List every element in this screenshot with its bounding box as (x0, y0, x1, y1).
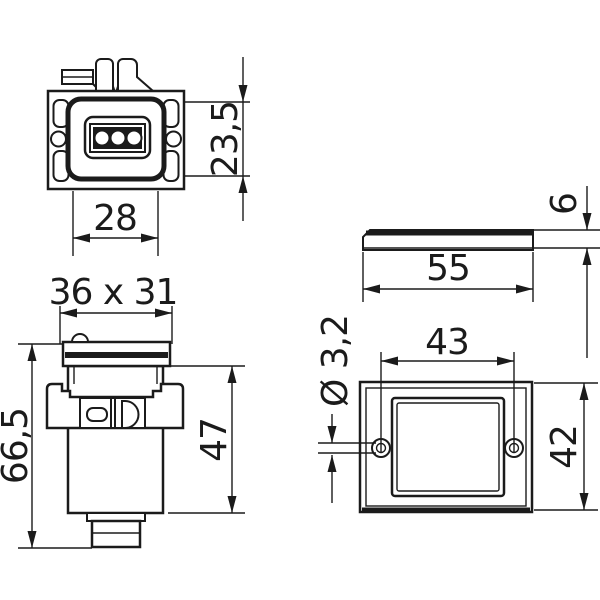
connector-side-view: 36 x 31 (0, 272, 245, 548)
plate-opening (392, 398, 504, 496)
dim-label-overall-length: 66,5 (0, 408, 36, 484)
dim-front-height: 23,5 (184, 57, 250, 221)
dim-label-hole-spacing: 43 (425, 322, 469, 363)
dim-cap-section: 36 x 31 (49, 272, 178, 344)
cap-dome (72, 334, 88, 342)
pin-3 (127, 131, 142, 146)
cable-outlet (87, 513, 145, 547)
cover-plate-side-view: 55 6 (363, 186, 600, 358)
dim-label-hole-diameter: Ø 3,2 (315, 315, 356, 407)
dim-label-cover-width: 55 (426, 248, 470, 289)
dim-label-cap-section: 36 x 31 (49, 272, 178, 313)
body-outline (68, 366, 163, 513)
dim-label-cover-thickness: 6 (544, 193, 585, 215)
technical-drawing-canvas: 23,5 28 36 x 31 (0, 0, 600, 600)
connector-front-view: 23,5 28 (48, 57, 250, 256)
technical-drawing-page: 23,5 28 36 x 31 (0, 0, 600, 600)
cap-and-gasket (63, 334, 170, 366)
latch-top (62, 59, 153, 94)
dim-front-width: 28 (73, 191, 158, 256)
pin-socket (85, 117, 150, 158)
pin-2 (111, 131, 126, 146)
dim-cover-thickness: 6 (533, 186, 600, 358)
dim-label-front-height: 23,5 (205, 101, 246, 177)
cover-plate-front-view: 43 42 Ø 3,2 (315, 315, 598, 512)
dim-cover-height: 42 (534, 383, 598, 510)
pin-1 (95, 131, 110, 146)
latch-mechanism (80, 398, 145, 428)
dim-label-cover-height: 42 (544, 425, 585, 469)
dim-label-body-length: 47 (194, 418, 235, 462)
dim-cover-width: 55 (363, 248, 533, 302)
dim-label-front-width: 28 (93, 198, 137, 239)
